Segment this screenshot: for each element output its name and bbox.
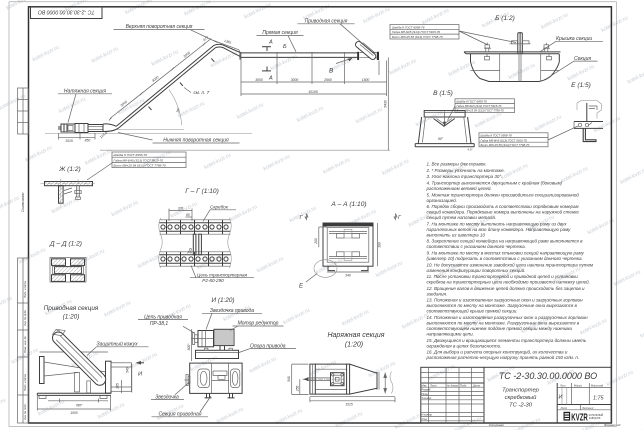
svg-text:Согласовано: Согласовано: [21, 192, 25, 212]
svg-text:ПР-38,1: ПР-38,1: [150, 321, 169, 327]
svg-text:Пров.: Пров.: [422, 392, 429, 396]
svg-text:А: А: [268, 40, 273, 46]
svg-text:Лист: Лист: [429, 383, 438, 387]
svg-text:В (1:5): В (1:5): [433, 90, 453, 97]
svg-text:1:75: 1:75: [593, 396, 604, 402]
svg-text:12. Вращение валов в движение: 12. Вращение валов в движение цепей долж…: [427, 285, 585, 291]
svg-text:1515: 1515: [65, 139, 73, 143]
svg-text:540: 540: [287, 376, 291, 382]
svg-text:соответствующем нижнем поддоне: соответствующем нижнем поддоне прямой се…: [427, 325, 573, 331]
svg-text:Гайка М8-6Н3 (S13) ГОСТ 5915-: Гайка М8-6Н3 (S13) ГОСТ 5915-70: [481, 138, 528, 142]
svg-text:Копировал: Копировал: [489, 423, 504, 427]
svg-text:(швеллер 10) подрезать в соо: (швеллер 10) подрезать в соответствии с …: [427, 256, 583, 261]
svg-text:Масштаб: Масштаб: [591, 383, 604, 387]
svg-text:1. Все размеры для справок.: 1. Все размеры для справок.: [427, 162, 487, 167]
svg-text:Шайба 8 ГОСТ 6958-78: Шайба 8 ГОСТ 6958-78: [481, 134, 513, 138]
svg-text:Подп.: Подп.: [460, 383, 467, 387]
svg-text:выполняются по месту на монтаж: выполняются по месту на монтаже. Разгруз…: [427, 321, 580, 326]
svg-text:заедания.: заедания.: [426, 291, 448, 296]
svg-text:Листов 1: Листов 1: [581, 406, 594, 410]
svg-text:Наряжная секция: Наряжная секция: [327, 332, 384, 339]
svg-text:Шайба 8 ГОСТ 6958-78: Шайба 8 ГОСТ 6958-78: [392, 25, 425, 29]
svg-text:10165: 10165: [308, 90, 318, 94]
svg-text:4,5°: 4,5°: [468, 148, 474, 152]
svg-text:скребковый: скребковый: [505, 394, 538, 401]
svg-text:№ докум.: № докум.: [447, 383, 459, 387]
svg-text:Болт М8×25.58 (S13) ГОСТ 7798: Болт М8×25.58 (S13) ГОСТ 7798-70: [481, 143, 530, 147]
svg-text:255: 255: [295, 386, 299, 393]
svg-text:16. Для выбора и расчета опор: 16. Для выбора и расчета опорных констру…: [427, 349, 568, 355]
svg-text:5430: 5430: [383, 100, 387, 108]
svg-text:Д – Д (1:2): Д – Д (1:2): [49, 241, 82, 248]
svg-text:4. Транспортер выполняется дв: 4. Транспортер выполняется двухцепным с …: [427, 180, 563, 186]
svg-text:(1:20): (1:20): [63, 314, 80, 321]
svg-text:Болт М8×25.58 (S13) ГОСТ 7798: Болт М8×25.58 (S13) ГОСТ 7798-70: [114, 164, 166, 168]
svg-text:2660: 2660: [323, 78, 332, 82]
svg-text:изменения конфигурации поворот: изменения конфигурации поворотных секций…: [427, 267, 526, 273]
svg-text:10. Не допускается изменение з: 10. Не допускается изменение заводской ц…: [427, 261, 594, 267]
svg-text:780*: 780*: [76, 403, 84, 407]
svg-text:Р2-80-290: Р2-80-290: [202, 278, 224, 283]
svg-text:9. На монтаже по месту в мест: 9. На монтаже по месту в местах стыковки…: [427, 250, 585, 256]
svg-text:расположением ветвей цепей.: расположением ветвей цепей.: [426, 185, 492, 191]
svg-text:320: 320: [178, 206, 184, 210]
svg-text:Инв. № дубл.: Инв. № дубл.: [23, 309, 27, 326]
svg-text:Подп. и дата: Подп. и дата: [23, 281, 27, 298]
svg-text:параллельных веток на всю длин: параллельных веток на всю длину конвейер…: [427, 226, 572, 232]
svg-text:265: 265: [116, 383, 120, 390]
svg-text:3. Угол наклона транспортера: 3. Угол наклона транспортера 30°.: [427, 174, 503, 179]
svg-text:ТС -2-30.30.00.0000 ВО: ТС -2-30.30.00.0000 ВО: [499, 371, 597, 381]
svg-text:Болт М8×25.58 (S13) ГОСТ 7798: Болт М8×25.58 (S13) ГОСТ 7798-70: [392, 35, 443, 39]
svg-text:3000: 3000: [255, 78, 263, 82]
svg-text:1500: 1500: [70, 411, 78, 415]
svg-text:Инв. № подл.: Инв. № подл.: [23, 403, 27, 420]
svg-text:секций конвейера. Порядковые: секций конвейера. Порядковые номера выпо…: [427, 209, 580, 215]
svg-text:соответствии с указанием данно: соответствии с указанием данного чертежа…: [427, 244, 526, 249]
svg-text:1500: 1500: [362, 78, 370, 82]
svg-text:1515: 1515: [345, 402, 353, 406]
svg-text:Н.контр.: Н.контр.: [422, 413, 433, 417]
svg-text:5. Монтаж транспортера должен: 5. Монтаж транспортера должен производит…: [427, 191, 580, 197]
svg-text:Гайка М8-6Н5 (S13) ГОСТ 5915-: Гайка М8-6Н5 (S13) ГОСТ 5915-70: [114, 158, 164, 162]
svg-text:11. После установки транспорт: 11. После установки транспортерной и при…: [427, 273, 579, 279]
svg-text:380: 380: [378, 242, 382, 248]
svg-text:Масса: Масса: [574, 383, 582, 387]
svg-text:Разраб.: Разраб.: [422, 388, 432, 392]
svg-text:2. * Размеры уточнить на монт: 2. * Размеры уточнить на монтаже.: [426, 168, 505, 173]
svg-text:Скребок: Скребок: [210, 205, 229, 210]
svg-text:6. Порядок сборки производить: 6. Порядок сборки производить в соответс…: [427, 204, 579, 209]
svg-text:Б: Б: [283, 44, 287, 50]
svg-text:Лист: Лист: [560, 406, 569, 410]
svg-text:КОТЕЛЬНЫЙ: КОТЕЛЬНЫЙ: [589, 414, 604, 417]
svg-text:см. п. 7: см. п. 7: [194, 90, 210, 95]
svg-text:Подп. и дата: Подп. и дата: [23, 374, 27, 391]
svg-text:секций путем наплавки метала.: секций путем наплавки метала.: [427, 214, 497, 220]
svg-text:200: 200: [314, 238, 318, 245]
svg-text:(1:20): (1:20): [345, 342, 363, 349]
svg-text:13. Положения и изготовления з: 13. Положения и изготовления загрузочных…: [427, 298, 584, 303]
svg-text:выполнить из швеллера 10: выполнить из швеллера 10: [427, 232, 486, 237]
svg-text:800*: 800*: [187, 343, 191, 351]
svg-text:И (1:20): И (1:20): [211, 297, 234, 304]
svg-text:850: 850: [85, 139, 91, 143]
svg-text:15. Движущиеся и вращающиеся: 15. Движущиеся и вращающиеся элементы тр…: [427, 338, 587, 343]
svg-text:Приводная секция: Приводная секция: [44, 304, 99, 312]
svg-text:ЗАВОД РФ: ЗАВОД РФ: [589, 417, 601, 420]
svg-text:Б (1:2): Б (1:2): [495, 15, 515, 22]
svg-text:340: 340: [345, 274, 351, 278]
svg-text:направляющими цепи.: направляющими цепи.: [427, 332, 474, 337]
svg-text:выполняются по месту на монтаж: выполняются по месту на монтаже. Загрузо…: [427, 303, 578, 308]
svg-text:Лит.: Лит.: [559, 383, 566, 387]
svg-text:KVZR: KVZR: [571, 413, 588, 424]
svg-text:8. Закрепление секций конвейе: 8. Закрепление секций конвейера на напра…: [427, 238, 584, 244]
svg-text:ТС -2-30: ТС -2-30: [509, 403, 533, 409]
svg-text:Взам. инв. №: Взам. инв. №: [23, 336, 27, 353]
svg-text:расположения расчетно-несущую: расположения расчетно-несущую нагрузку п…: [426, 354, 580, 360]
svg-text:Т.контр.: Т.контр.: [422, 396, 433, 400]
svg-text:организацией.: организацией.: [427, 197, 458, 203]
svg-text:Изм.: Изм.: [422, 383, 428, 387]
svg-text:А – А (1:10): А – А (1:10): [330, 201, 366, 208]
svg-text:Транспортер: Транспортер: [502, 388, 540, 394]
svg-text:Д: Д: [187, 249, 192, 255]
svg-text:3000: 3000: [291, 78, 299, 82]
svg-text:Г – Г (1:10): Г – Г (1:10): [185, 188, 219, 195]
svg-text:ограждения в целях безопасност: ограждения в целях безопасности.: [427, 343, 502, 348]
svg-text:Ж (1:2): Ж (1:2): [58, 166, 80, 173]
svg-text:80: 80: [186, 213, 190, 217]
svg-text:14. Положения и изготовления: 14. Положения и изготовления разгрузочны…: [427, 315, 589, 320]
svg-text:Гайка М8-6Н5 (S13) ГОСТ 5915-: Гайка М8-6Н5 (S13) ГОСТ 5915-70: [392, 30, 440, 34]
svg-text:Шайба 8 ГОСТ 6958-78: Шайба 8 ГОСТ 6958-78: [457, 100, 488, 104]
svg-text:Утв.: Утв.: [422, 417, 428, 421]
svg-text:ТС -2-30.30.00.0000 ВО: ТС -2-30.30.00.0000 ВО: [38, 9, 95, 15]
svg-text:540: 540: [126, 367, 130, 373]
svg-text:Гайка М8-6Н5 (S13) ГОСТ 5915-: Гайка М8-6Н5 (S13) ГОСТ 5915-70: [457, 104, 502, 108]
svg-text:И: И: [559, 395, 563, 401]
svg-text:Е (1:5): Е (1:5): [571, 82, 591, 89]
svg-text:А: А: [268, 76, 273, 82]
svg-text:Формат А2: Формат А2: [604, 423, 621, 427]
svg-text:соответствующей крыше прямой с: соответствующей крыше прямой секции.: [427, 308, 518, 314]
svg-text:В: В: [329, 68, 334, 75]
svg-text:Цепь транспортерная: Цепь транспортерная: [197, 273, 248, 278]
svg-text:Дата: Дата: [472, 383, 480, 387]
svg-text:7. На монтаже по месту выполн: 7. На монтаже по месту выполнить направл…: [427, 221, 568, 226]
svg-text:90°: 90°: [438, 137, 444, 141]
svg-text:Шайба 8 ГОСТ 6958-78: Шайба 8 ГОСТ 6958-78: [114, 153, 148, 157]
svg-text:скребков на транспортерные цеп: скребков на транспортерные цепи необходи…: [427, 279, 590, 285]
